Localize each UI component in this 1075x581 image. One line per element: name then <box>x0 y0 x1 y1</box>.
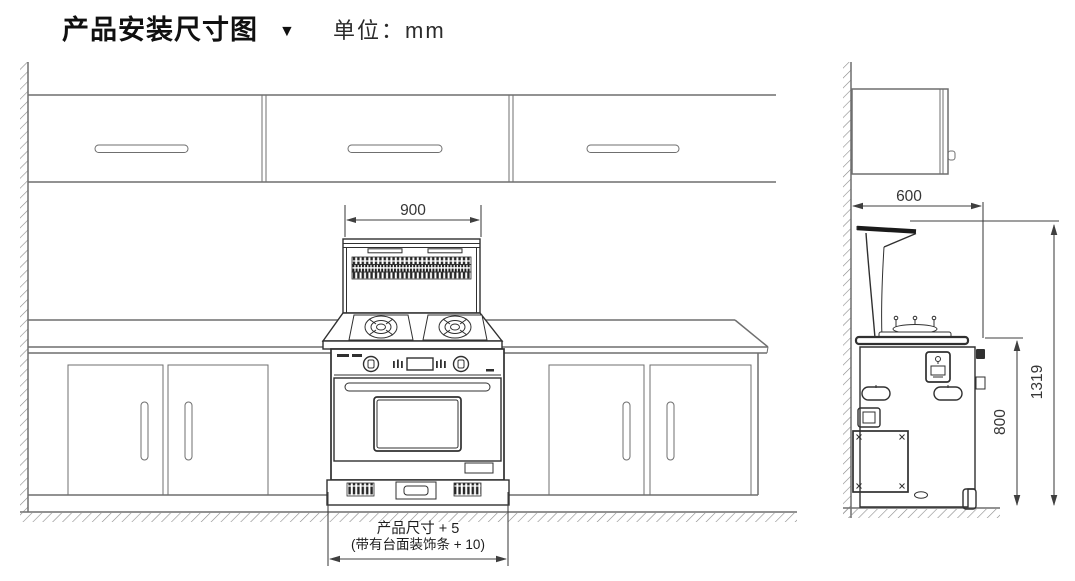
hood <box>343 239 480 313</box>
base-vent-right <box>454 483 481 496</box>
page-title: 产品安装尺寸图 <box>62 15 258 45</box>
cabinet-handle <box>95 145 188 153</box>
door-handle <box>667 402 674 460</box>
unit-label: 单位：mm <box>333 18 446 43</box>
cabinet-door <box>68 365 163 495</box>
dim-1319-label: 1319 <box>1029 365 1046 399</box>
title-triangle-marker: ▼ <box>279 23 295 40</box>
vent-grille <box>352 257 471 279</box>
door-handle <box>141 402 148 460</box>
burner-left <box>349 315 413 340</box>
door-handle <box>185 402 192 460</box>
front-view: 900 <box>20 62 797 566</box>
stove-front <box>323 239 509 505</box>
stove-base <box>327 480 509 505</box>
dim-depth: 600 <box>852 188 983 338</box>
cabinet-handle <box>587 145 679 153</box>
wall-right <box>843 62 851 518</box>
panel-dash <box>486 369 494 372</box>
installation-dimension-diagram: 产品安装尺寸图 ▼ 单位：mm <box>0 0 1075 581</box>
diagram-canvas: 产品安装尺寸图 ▼ 单位：mm <box>0 0 1075 581</box>
header: 产品安装尺寸图 ▼ 单位：mm <box>62 15 446 45</box>
cooktop <box>323 313 502 349</box>
cabinet-door <box>168 365 268 495</box>
mount-clip-bottom <box>976 377 985 389</box>
cutout-note-line1: 产品尺寸 + 5 <box>377 520 460 537</box>
upper-cabinet-side <box>852 89 955 174</box>
burner-side <box>879 316 951 338</box>
cabinet-door <box>650 365 751 495</box>
dim-counter-height: 800 <box>985 338 1023 506</box>
burner-right <box>423 315 487 340</box>
wall-hatch <box>20 62 28 512</box>
brand-mark <box>337 354 349 357</box>
counter-edge <box>856 337 968 344</box>
door-handle <box>623 402 630 460</box>
dim-900-label: 900 <box>400 202 426 219</box>
stove-body-side <box>853 347 985 509</box>
floor-right <box>843 508 1000 518</box>
cabinet-handle <box>348 145 442 153</box>
wall-hatch <box>843 62 851 518</box>
dim-600-label: 600 <box>896 188 922 205</box>
dim-800-label: 800 <box>992 409 1009 435</box>
floor-hatch <box>843 509 1000 518</box>
base-vent-left <box>347 483 374 496</box>
hood-side <box>857 226 916 338</box>
mount-clip-top <box>976 349 985 359</box>
dim-hood-width: 900 <box>345 202 481 237</box>
hood-back-panel <box>866 233 875 338</box>
side-view: 600 800 1319 <box>843 62 1059 518</box>
cabinet-handle-side <box>948 151 955 160</box>
upper-cabinets <box>28 95 776 182</box>
cutout-note-line2: (带有台面装饰条 + 10) <box>351 536 485 552</box>
brand-mark <box>352 354 362 357</box>
hood-canopy <box>857 228 916 232</box>
wall-left <box>20 62 28 512</box>
